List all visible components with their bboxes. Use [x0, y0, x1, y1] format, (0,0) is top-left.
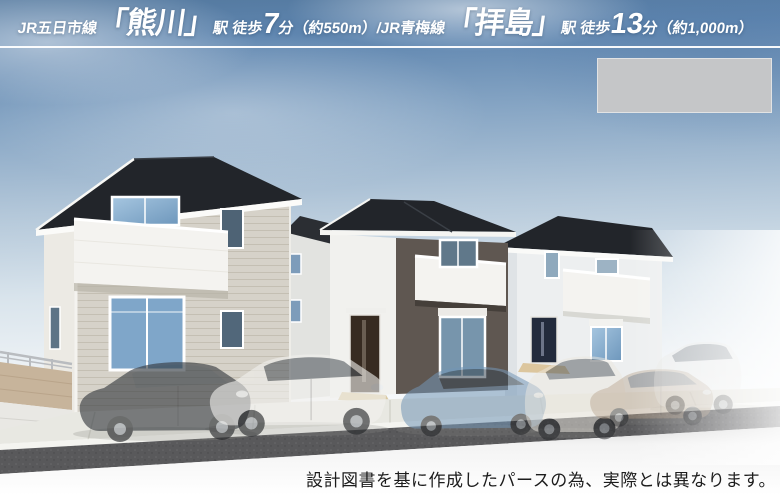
header-divider-line: [0, 46, 780, 48]
header-station-2: 「拝島」: [443, 7, 564, 40]
right-fade-overlay: [630, 230, 780, 465]
header-walk-label-2: 駅 徒歩: [560, 20, 612, 37]
gray-placeholder-box: [597, 58, 772, 113]
header-walk-label-1: 駅 徒歩: [212, 20, 264, 37]
header-station-1: 「熊川」: [95, 7, 216, 40]
header-line-name-1: JR五日市線: [17, 20, 99, 37]
disclaimer-text: 設計図書を基に作成したパースの為、実際とは異なります。: [306, 466, 776, 491]
real-estate-render: JR五日市線「熊川」駅 徒歩7分（約550m）/JR青梅線「拝島」駅 徒歩13分…: [0, 0, 780, 495]
house-right-window-upper: [545, 252, 559, 278]
house-middle-roof: [320, 199, 516, 232]
station-access-header: JR五日市線「熊川」駅 徒歩7分（約550m）/JR青梅線「拝島」駅 徒歩13分…: [15, 4, 780, 49]
header-distance-2: 分（約1,000m）: [641, 20, 754, 37]
header-minutes-2: 13: [609, 8, 646, 40]
header-distance-1: 分（約550m）/: [277, 20, 382, 37]
header-line-name-2: JR青梅線: [380, 20, 447, 37]
